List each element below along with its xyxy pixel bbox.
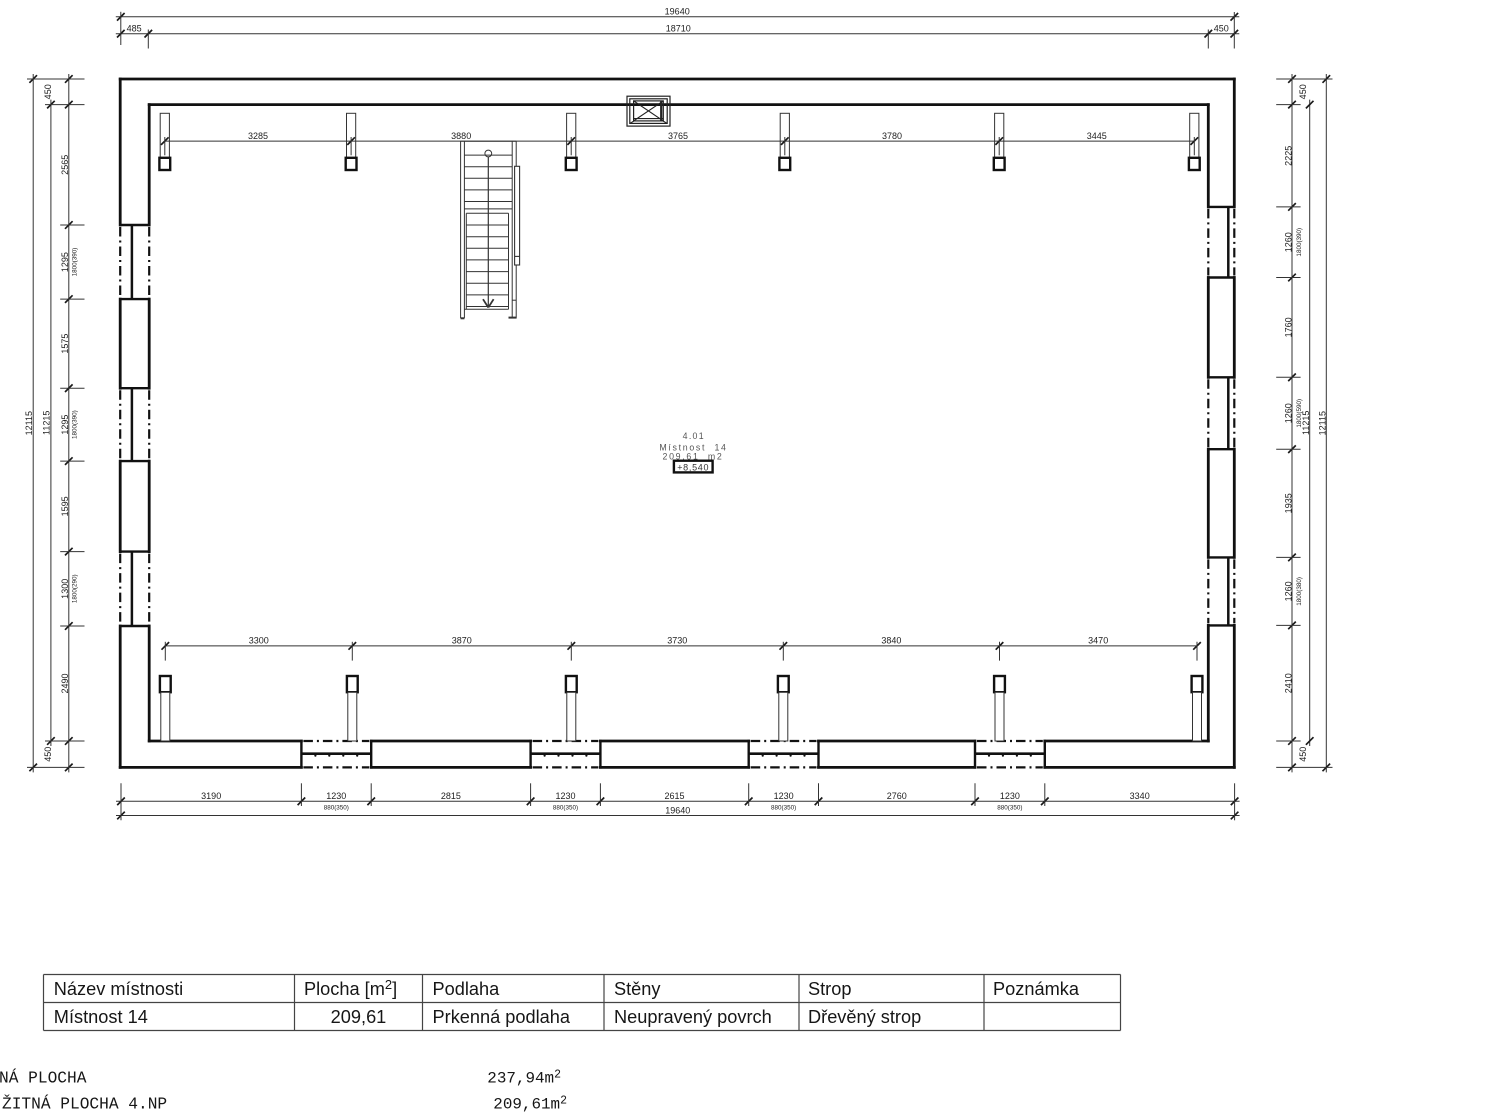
svg-text:3285: 3285 xyxy=(248,131,268,141)
svg-text:1800(390): 1800(390) xyxy=(72,410,79,439)
svg-text:1260: 1260 xyxy=(1284,403,1294,423)
svg-text:Místnost 14: Místnost 14 xyxy=(54,1007,148,1027)
svg-text:1230: 1230 xyxy=(774,791,794,801)
svg-text:3880: 3880 xyxy=(451,131,471,141)
svg-text:2225: 2225 xyxy=(1284,146,1294,166)
svg-text:ŽITNÁ PLOCHA 4.NP: ŽITNÁ PLOCHA 4.NP xyxy=(2,1095,167,1114)
svg-text:19640: 19640 xyxy=(665,7,690,17)
svg-text:1800(290): 1800(290) xyxy=(72,574,79,603)
svg-text:3870: 3870 xyxy=(452,636,472,646)
svg-text:2815: 2815 xyxy=(441,791,461,801)
svg-text:1300: 1300 xyxy=(60,579,70,599)
svg-text:3780: 3780 xyxy=(882,131,902,141)
svg-text:1595: 1595 xyxy=(60,496,70,516)
svg-text:2615: 2615 xyxy=(664,791,684,801)
svg-text:Poznámka: Poznámka xyxy=(993,979,1080,999)
svg-text:3765: 3765 xyxy=(668,131,688,141)
svg-text:3470: 3470 xyxy=(1088,636,1108,646)
svg-text:Stěny: Stěny xyxy=(614,979,661,999)
svg-text:Neupravený povrch: Neupravený povrch xyxy=(614,1007,772,1027)
svg-text:880(350): 880(350) xyxy=(553,805,578,812)
svg-text:4.01: 4.01 xyxy=(683,431,705,441)
svg-text:1800(390): 1800(390) xyxy=(72,248,79,277)
svg-text:Podlaha: Podlaha xyxy=(433,979,501,999)
svg-text:3190: 3190 xyxy=(201,791,221,801)
svg-text:19640: 19640 xyxy=(665,805,690,815)
svg-text:1230: 1230 xyxy=(555,791,575,801)
svg-text:18710: 18710 xyxy=(666,24,691,34)
svg-text:Prkenná podlaha: Prkenná podlaha xyxy=(433,1007,571,1027)
svg-text:237,94m2: 237,94m2 xyxy=(487,1069,561,1088)
svg-text:450: 450 xyxy=(1298,84,1308,99)
svg-text:1295: 1295 xyxy=(60,415,70,435)
svg-text:2565: 2565 xyxy=(60,155,70,175)
svg-text:3730: 3730 xyxy=(667,636,687,646)
svg-text:1260: 1260 xyxy=(1284,581,1294,601)
svg-text:Plocha [m2]: Plocha [m2] xyxy=(304,977,397,999)
svg-text:Dřevěný strop: Dřevěný strop xyxy=(808,1007,921,1027)
svg-text:NÁ PLOCHA: NÁ PLOCHA xyxy=(0,1069,87,1088)
svg-text:485: 485 xyxy=(127,24,142,34)
svg-text:Strop: Strop xyxy=(808,979,851,999)
svg-text:3445: 3445 xyxy=(1087,131,1107,141)
svg-text:3340: 3340 xyxy=(1130,791,1150,801)
svg-text:450: 450 xyxy=(43,84,53,99)
svg-text:3840: 3840 xyxy=(881,636,901,646)
svg-text:880(350): 880(350) xyxy=(771,805,796,812)
svg-text:Název místnosti: Název místnosti xyxy=(54,979,183,999)
svg-text:450: 450 xyxy=(1214,24,1229,34)
svg-text:450: 450 xyxy=(1298,747,1308,762)
svg-text:12115: 12115 xyxy=(24,411,34,435)
svg-text:450: 450 xyxy=(43,747,53,762)
svg-text:2410: 2410 xyxy=(1284,673,1294,693)
svg-text:1800(390): 1800(390) xyxy=(1296,228,1303,257)
svg-text:+8,540: +8,540 xyxy=(677,462,709,472)
svg-text:1295: 1295 xyxy=(60,252,70,272)
svg-text:880(350): 880(350) xyxy=(997,805,1022,812)
svg-text:1575: 1575 xyxy=(60,334,70,354)
svg-text:11215: 11215 xyxy=(1301,411,1311,435)
svg-text:209,61m2: 209,61m2 xyxy=(493,1095,567,1114)
svg-text:2760: 2760 xyxy=(887,791,907,801)
svg-text:209,61: 209,61 xyxy=(331,1007,387,1027)
svg-text:1260: 1260 xyxy=(1284,232,1294,252)
svg-text:1230: 1230 xyxy=(1000,791,1020,801)
svg-text:1230: 1230 xyxy=(326,791,346,801)
svg-text:2490: 2490 xyxy=(60,673,70,693)
svg-text:12115: 12115 xyxy=(1318,411,1328,435)
svg-text:880(350): 880(350) xyxy=(324,805,349,812)
svg-text:1760: 1760 xyxy=(1284,317,1294,337)
svg-text:11215: 11215 xyxy=(42,411,52,435)
svg-text:3300: 3300 xyxy=(249,636,269,646)
svg-text:1935: 1935 xyxy=(1284,493,1294,513)
svg-text:1800(380): 1800(380) xyxy=(1296,577,1303,606)
